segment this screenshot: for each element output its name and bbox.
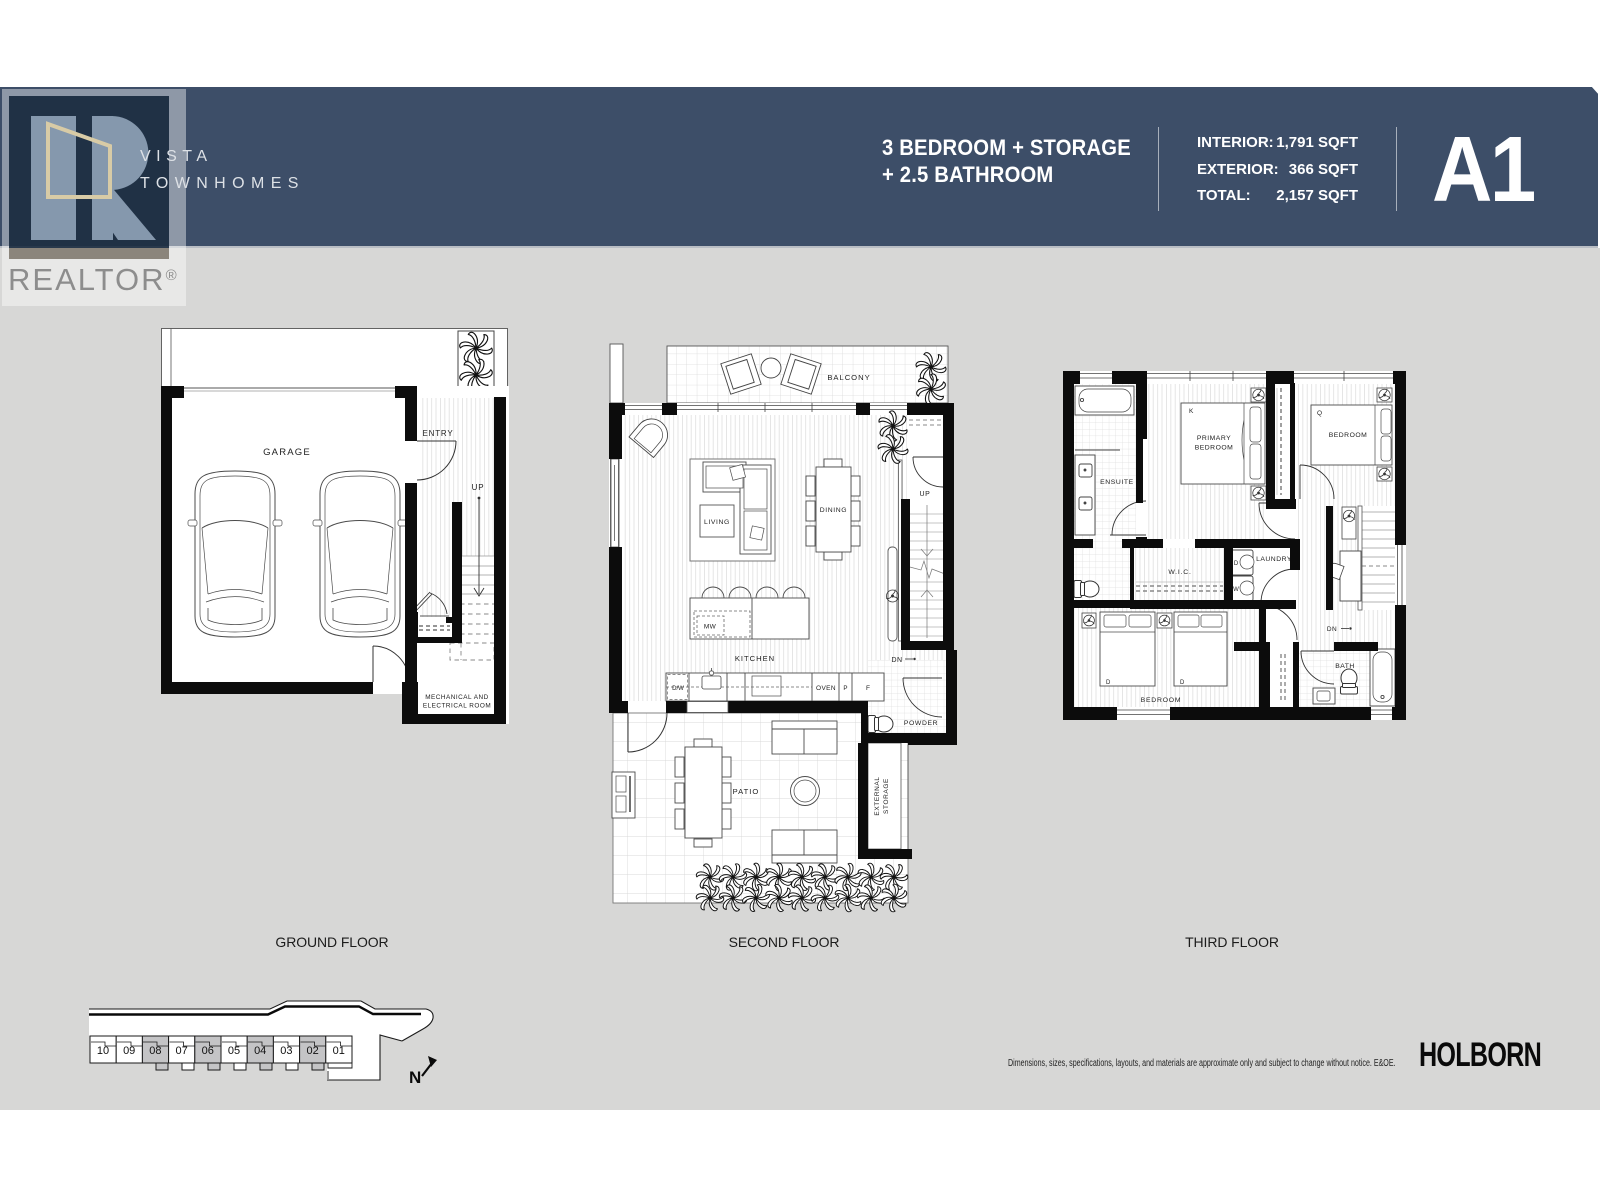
svg-text:05: 05 <box>228 1045 240 1057</box>
svg-text:Q: Q <box>1317 410 1322 417</box>
svg-text:04: 04 <box>254 1045 266 1057</box>
svg-text:DN: DN <box>1327 626 1337 633</box>
svg-text:D/W: D/W <box>672 686 684 692</box>
svg-text:D: D <box>1234 561 1239 567</box>
svg-text:OVEN: OVEN <box>816 685 836 692</box>
svg-text:03: 03 <box>280 1045 292 1057</box>
svg-text:D: D <box>1180 680 1185 686</box>
svg-text:P: P <box>843 685 847 692</box>
svg-text:KITCHEN: KITCHEN <box>735 654 775 663</box>
svg-text:01: 01 <box>333 1045 345 1057</box>
svg-text:10: 10 <box>97 1045 109 1057</box>
svg-text:BEDROOM: BEDROOM <box>1329 432 1368 439</box>
svg-text:D: D <box>1106 680 1111 686</box>
svg-text:LIVING: LIVING <box>704 519 730 526</box>
svg-text:09: 09 <box>123 1045 135 1057</box>
svg-text:07: 07 <box>175 1045 187 1057</box>
svg-text:MW: MW <box>704 624 717 631</box>
svg-text:N: N <box>409 1068 421 1087</box>
svg-text:08: 08 <box>149 1045 161 1057</box>
svg-text:LAUNDRY: LAUNDRY <box>1256 556 1292 563</box>
svg-text:GARAGE: GARAGE <box>263 447 311 458</box>
svg-text:ELECTRICAL ROOM: ELECTRICAL ROOM <box>423 703 491 710</box>
svg-text:BEDROOM: BEDROOM <box>1195 445 1234 452</box>
svg-text:02: 02 <box>306 1045 318 1057</box>
svg-text:K: K <box>1189 408 1194 415</box>
svg-text:MECHANICAL AND: MECHANICAL AND <box>425 694 489 701</box>
svg-text:EXTERNAL: EXTERNAL <box>874 776 881 815</box>
svg-text:DINING: DINING <box>820 507 847 514</box>
svg-text:BATH: BATH <box>1335 663 1355 670</box>
svg-text:BEDROOM: BEDROOM <box>1141 697 1182 704</box>
svg-text:DN: DN <box>891 657 902 664</box>
svg-text:BALCONY: BALCONY <box>827 373 870 382</box>
svg-text:W.I.C.: W.I.C. <box>1168 569 1191 576</box>
svg-text:F: F <box>866 685 870 692</box>
svg-text:UP: UP <box>472 483 485 492</box>
svg-text:ENSUITE: ENSUITE <box>1100 479 1134 486</box>
svg-text:06: 06 <box>202 1045 214 1057</box>
svg-text:STORAGE: STORAGE <box>883 778 890 814</box>
svg-text:PRIMARY: PRIMARY <box>1197 435 1231 442</box>
svg-text:POWDER: POWDER <box>904 720 938 727</box>
svg-text:PATIO: PATIO <box>733 787 760 796</box>
svg-text:W: W <box>1233 587 1239 593</box>
svg-text:UP: UP <box>920 491 931 498</box>
svg-text:ENTRY: ENTRY <box>423 429 454 438</box>
